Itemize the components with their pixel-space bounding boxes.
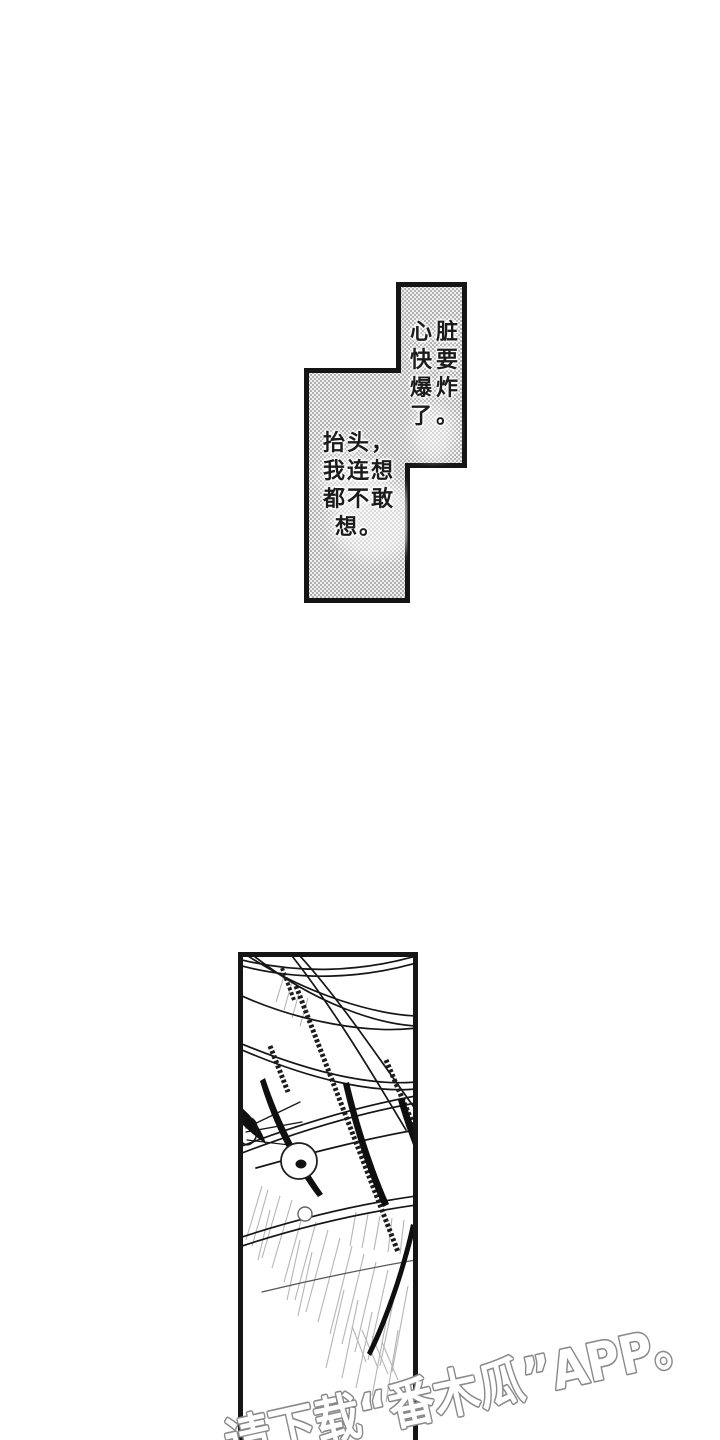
bubble-line: 爆炸 [410, 375, 462, 403]
eye-pupil [296, 1160, 307, 1169]
bubble-line: 我连想 [323, 458, 395, 486]
speech-bubble-bottom-text: 抬头， 我连想 都不敢 想。 [308, 373, 408, 598]
bubble-line: 想。 [335, 514, 383, 542]
bubble-line: 抬头， [323, 430, 395, 458]
bubble-line: 心脏 [410, 319, 462, 347]
speech-bubble-top-text: 心脏 快要 爆炸 了。 [400, 287, 468, 463]
eye-graphic [281, 1143, 317, 1179]
bubble-line: 都不敢 [323, 486, 395, 514]
manga-page: 请下载“番木瓜”APP。 心脏 快要 爆炸 了。 抬头， 我连想 都不敢 想。 [0, 0, 720, 1440]
page-artwork: 请下载“番木瓜”APP。 [0, 0, 720, 1440]
bubble-line: 快要 [410, 347, 462, 375]
small-circle-detail [298, 1207, 312, 1221]
bubble-line: 了。 [410, 403, 462, 431]
manga-panel [241, 955, 425, 1440]
panel-border [241, 955, 416, 1440]
